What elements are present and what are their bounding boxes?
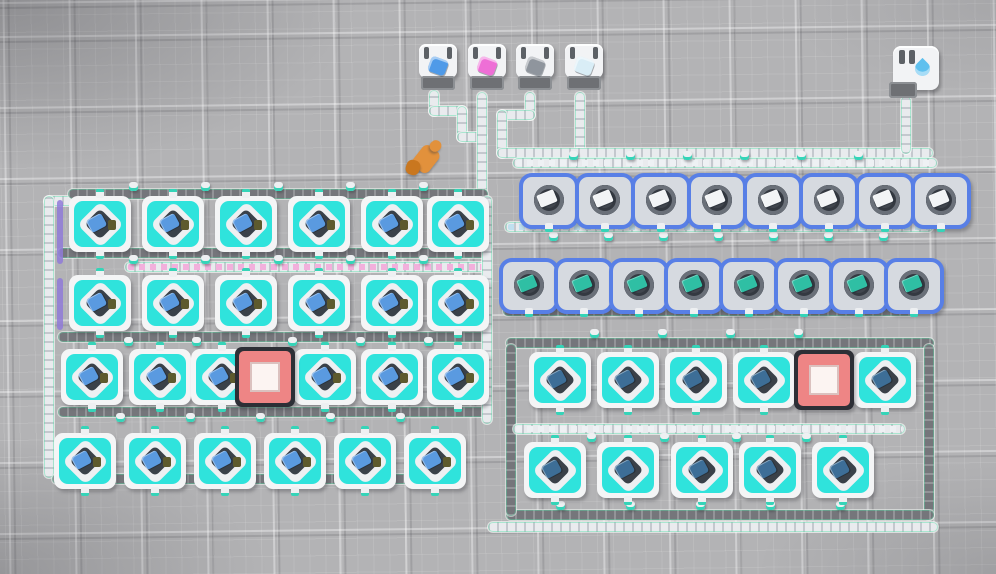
sorter-connector xyxy=(800,308,808,317)
sorter-connector xyxy=(624,435,632,444)
assembler-machine[interactable] xyxy=(427,196,489,252)
conveyor-belt[interactable] xyxy=(924,344,934,520)
storage-slot xyxy=(447,47,452,59)
assembler-machine[interactable] xyxy=(529,352,591,408)
machine-byproduct-item xyxy=(254,220,262,230)
belt-accent-strip xyxy=(57,200,63,264)
assembler-machine[interactable] xyxy=(69,196,131,252)
machine-byproduct-item xyxy=(373,457,381,467)
tank-slot xyxy=(909,50,915,64)
sorter-connector xyxy=(454,403,462,412)
storage-slot xyxy=(570,47,575,59)
sorter-connector xyxy=(242,329,250,338)
assembler-machine[interactable] xyxy=(264,433,326,489)
power-pole[interactable] xyxy=(854,151,863,160)
sorter-connector xyxy=(881,345,889,354)
sorter-connector xyxy=(151,426,159,435)
arc-smelter-machine[interactable] xyxy=(855,173,915,229)
sorter-connector xyxy=(551,435,559,444)
sorter-connector xyxy=(713,223,721,232)
sorter-connector xyxy=(624,345,632,354)
power-pole[interactable] xyxy=(587,433,596,442)
sorter-connector xyxy=(910,308,918,317)
sorter-connector xyxy=(855,308,863,317)
storage-base xyxy=(470,76,504,90)
tank-base xyxy=(889,82,917,98)
assembler-machine[interactable] xyxy=(812,442,874,498)
sorter-connector xyxy=(169,189,177,198)
assembler-machine[interactable] xyxy=(524,442,586,498)
sorter-connector xyxy=(291,487,299,496)
machine-byproduct-item xyxy=(400,220,408,230)
sorter-connector xyxy=(388,268,396,277)
conveyor-belt[interactable] xyxy=(488,522,938,532)
power-pole[interactable] xyxy=(659,232,668,241)
sorter-connector xyxy=(839,435,847,444)
power-pole[interactable] xyxy=(201,255,210,264)
sorter-connector xyxy=(601,223,609,232)
sorter-connector xyxy=(769,223,777,232)
storage-box[interactable] xyxy=(516,44,554,90)
machine-byproduct-item xyxy=(108,220,116,230)
storage-slot xyxy=(496,47,501,59)
assembler-machine[interactable] xyxy=(142,275,204,331)
power-pole[interactable] xyxy=(396,413,405,422)
sorter-connector xyxy=(692,406,700,415)
sorter-connector xyxy=(545,223,553,232)
sorter-connector xyxy=(454,329,462,338)
substation-frame xyxy=(239,351,291,403)
power-pole[interactable] xyxy=(129,255,138,264)
sorter-connector xyxy=(361,426,369,435)
assembler-machine[interactable] xyxy=(142,196,204,252)
sorter-connector xyxy=(454,342,462,351)
machine-byproduct-item xyxy=(327,220,335,230)
sorter-connector xyxy=(745,308,753,317)
sorter-connector xyxy=(624,406,632,415)
assembler-machine[interactable] xyxy=(288,275,350,331)
power-pole[interactable] xyxy=(129,182,138,191)
sorter-connector xyxy=(96,268,104,277)
power-pole[interactable] xyxy=(201,182,210,191)
power-pole[interactable] xyxy=(356,337,365,346)
arc-smelter-machine[interactable] xyxy=(575,173,635,229)
sorter-connector xyxy=(624,496,632,505)
power-pole[interactable] xyxy=(769,232,778,241)
sorter-connector xyxy=(315,250,323,259)
sorter-connector xyxy=(221,487,229,496)
power-pole[interactable] xyxy=(732,433,741,442)
sorter-connector xyxy=(88,403,96,412)
machine-byproduct-item xyxy=(466,220,474,230)
arc-smelter-machine[interactable] xyxy=(519,173,579,229)
power-pole[interactable] xyxy=(192,337,201,346)
tank-slot xyxy=(899,50,905,64)
power-pole[interactable] xyxy=(683,151,692,160)
sorter-connector xyxy=(156,403,164,412)
power-pole[interactable] xyxy=(626,151,635,160)
machine-byproduct-item xyxy=(400,373,408,383)
sorter-connector xyxy=(388,189,396,198)
belt-items xyxy=(516,426,902,432)
assembler-machine[interactable] xyxy=(334,433,396,489)
sorter-connector xyxy=(388,250,396,259)
sorter-connector xyxy=(556,406,564,415)
machine-byproduct-item xyxy=(181,299,189,309)
power-pole[interactable] xyxy=(274,255,283,264)
power-substation[interactable] xyxy=(794,350,854,410)
sorter-connector xyxy=(881,223,889,232)
sorter-connector xyxy=(635,308,643,317)
sorter-connector xyxy=(760,345,768,354)
sorter-connector xyxy=(692,345,700,354)
sorter-connector xyxy=(454,250,462,259)
power-pole[interactable] xyxy=(549,232,558,241)
power-pole[interactable] xyxy=(658,329,667,338)
storage-box[interactable] xyxy=(565,44,603,90)
sorter-connector xyxy=(556,345,564,354)
sorter-connector xyxy=(96,189,104,198)
player-mecha[interactable] xyxy=(404,138,448,182)
arc-smelter-machine[interactable] xyxy=(719,258,779,314)
power-pole[interactable] xyxy=(424,337,433,346)
storage-base xyxy=(518,76,552,90)
assembler-machine[interactable] xyxy=(361,196,423,252)
arc-smelter-machine[interactable] xyxy=(687,173,747,229)
power-pole[interactable] xyxy=(419,182,428,191)
power-pole[interactable] xyxy=(824,232,833,241)
storage-box[interactable] xyxy=(468,44,506,90)
sorter-connector xyxy=(760,406,768,415)
sorter-connector xyxy=(81,426,89,435)
conveyor-belt[interactable] xyxy=(513,424,905,434)
sorter-connector xyxy=(81,487,89,496)
sorter-connector xyxy=(388,329,396,338)
assembler-machine[interactable] xyxy=(215,196,277,252)
storage-slot xyxy=(473,47,478,59)
machine-byproduct-item xyxy=(163,457,171,467)
conveyor-belt[interactable] xyxy=(506,338,934,348)
sorter-connector xyxy=(690,308,698,317)
arc-smelter-machine[interactable] xyxy=(499,258,559,314)
sorter-connector xyxy=(698,435,706,444)
storage-base xyxy=(567,76,601,90)
sorter-connector xyxy=(218,342,226,351)
power-pole[interactable] xyxy=(879,232,888,241)
assembler-machine[interactable] xyxy=(854,352,916,408)
sorter-connector xyxy=(218,403,226,412)
assembler-machine[interactable] xyxy=(215,275,277,331)
assembler-machine[interactable] xyxy=(597,352,659,408)
arc-smelter-machine[interactable] xyxy=(911,173,971,229)
sorter-connector xyxy=(431,426,439,435)
storage-base xyxy=(421,76,455,90)
sorter-connector xyxy=(551,496,559,505)
arc-smelter-machine[interactable] xyxy=(554,258,614,314)
power-pole[interactable] xyxy=(288,337,297,346)
arc-smelter-machine[interactable] xyxy=(774,258,834,314)
power-pole[interactable] xyxy=(346,182,355,191)
storage-slot xyxy=(521,47,526,59)
assembler-machine[interactable] xyxy=(124,433,186,489)
sorter-connector xyxy=(454,268,462,277)
conveyor-belt[interactable] xyxy=(497,148,933,158)
power-pole[interactable] xyxy=(569,151,578,160)
substation-frame xyxy=(798,354,850,406)
power-pole[interactable] xyxy=(802,433,811,442)
assembler-machine[interactable] xyxy=(427,275,489,331)
arc-smelter-machine[interactable] xyxy=(609,258,669,314)
belt-accent-strip xyxy=(57,278,63,330)
power-pole[interactable] xyxy=(346,255,355,264)
power-pole[interactable] xyxy=(590,329,599,338)
power-pole[interactable] xyxy=(326,413,335,422)
power-pole[interactable] xyxy=(419,255,428,264)
assembler-machine[interactable] xyxy=(671,442,733,498)
sorter-connector xyxy=(825,223,833,232)
power-pole[interactable] xyxy=(794,329,803,338)
assembler-machine[interactable] xyxy=(61,349,123,405)
assembler-machine[interactable] xyxy=(427,349,489,405)
sorter-connector xyxy=(766,435,774,444)
sorter-connector xyxy=(242,189,250,198)
sorter-connector xyxy=(881,406,889,415)
machine-byproduct-item xyxy=(233,457,241,467)
assembler-machine[interactable] xyxy=(288,196,350,252)
machine-byproduct-item xyxy=(254,299,262,309)
assembler-machine[interactable] xyxy=(294,349,356,405)
assembler-machine[interactable] xyxy=(739,442,801,498)
assembler-machine[interactable] xyxy=(361,349,423,405)
sorter-connector xyxy=(151,487,159,496)
machine-byproduct-item xyxy=(443,457,451,467)
sorter-connector xyxy=(580,308,588,317)
conveyor-belt[interactable] xyxy=(125,262,487,272)
assembler-machine[interactable] xyxy=(129,349,191,405)
assembler-machine[interactable] xyxy=(361,275,423,331)
sorter-connector xyxy=(242,268,250,277)
sorter-connector xyxy=(361,487,369,496)
power-pole[interactable] xyxy=(116,413,125,422)
power-pole[interactable] xyxy=(714,232,723,241)
power-pole[interactable] xyxy=(604,232,613,241)
machine-byproduct-item xyxy=(400,299,408,309)
arc-smelter-machine[interactable] xyxy=(799,173,859,229)
sorter-connector xyxy=(454,189,462,198)
sorter-connector xyxy=(321,403,329,412)
machine-byproduct-item xyxy=(466,299,474,309)
sorter-connector xyxy=(156,342,164,351)
sorter-connector xyxy=(937,223,945,232)
sorter-connector xyxy=(431,487,439,496)
machine-byproduct-item xyxy=(93,457,101,467)
conveyor-belt[interactable] xyxy=(575,92,585,156)
power-pole[interactable] xyxy=(740,151,749,160)
arc-smelter-machine[interactable] xyxy=(631,173,691,229)
sorter-connector xyxy=(657,223,665,232)
belt-items xyxy=(128,264,484,270)
sorter-connector xyxy=(96,329,104,338)
assembler-machine[interactable] xyxy=(597,442,659,498)
storage-slot xyxy=(544,47,549,59)
power-pole[interactable] xyxy=(274,182,283,191)
power-pole[interactable] xyxy=(660,433,669,442)
sorter-connector xyxy=(315,268,323,277)
sorter-connector xyxy=(96,250,104,259)
conveyor-belt[interactable] xyxy=(506,510,934,520)
sorter-connector xyxy=(169,268,177,277)
assembler-machine[interactable] xyxy=(194,433,256,489)
machine-byproduct-item xyxy=(333,373,341,383)
arc-smelter-machine[interactable] xyxy=(829,258,889,314)
sorter-connector xyxy=(766,496,774,505)
sorter-connector xyxy=(839,496,847,505)
sorter-connector xyxy=(388,342,396,351)
machine-byproduct-item xyxy=(327,299,335,309)
sorter-connector xyxy=(169,250,177,259)
power-pole[interactable] xyxy=(256,413,265,422)
power-pole[interactable] xyxy=(186,413,195,422)
sorter-connector xyxy=(169,329,177,338)
machine-byproduct-item xyxy=(108,299,116,309)
sorter-connector xyxy=(221,426,229,435)
power-pole[interactable] xyxy=(124,337,133,346)
machine-byproduct-item xyxy=(303,457,311,467)
power-pole[interactable] xyxy=(726,329,735,338)
sorter-connector xyxy=(388,403,396,412)
power-pole[interactable] xyxy=(797,151,806,160)
sorter-connector xyxy=(315,189,323,198)
fluid-storage-tank[interactable] xyxy=(893,46,939,98)
belt-items xyxy=(516,160,934,166)
conveyor-belt[interactable] xyxy=(44,196,54,478)
game-viewport xyxy=(0,0,996,574)
arc-smelter-machine[interactable] xyxy=(664,258,724,314)
machine-byproduct-item xyxy=(181,220,189,230)
sorter-connector xyxy=(321,342,329,351)
assembler-machine[interactable] xyxy=(54,433,116,489)
machine-byproduct-item xyxy=(466,373,474,383)
assembler-machine[interactable] xyxy=(404,433,466,489)
sorter-connector xyxy=(242,250,250,259)
assembler-machine[interactable] xyxy=(733,352,795,408)
sorter-connector xyxy=(88,342,96,351)
storage-box[interactable] xyxy=(419,44,457,90)
storage-slot xyxy=(424,47,429,59)
machine-byproduct-item xyxy=(168,373,176,383)
power-substation[interactable] xyxy=(235,347,295,407)
conveyor-belt[interactable] xyxy=(901,96,911,154)
assembler-machine[interactable] xyxy=(665,352,727,408)
sorter-connector xyxy=(291,426,299,435)
arc-smelter-machine[interactable] xyxy=(884,258,944,314)
arc-smelter-machine[interactable] xyxy=(743,173,803,229)
machine-byproduct-item xyxy=(100,373,108,383)
sorter-connector xyxy=(315,329,323,338)
sorter-connector xyxy=(525,308,533,317)
assembler-machine[interactable] xyxy=(69,275,131,331)
storage-slot xyxy=(593,47,598,59)
sorter-connector xyxy=(698,496,706,505)
